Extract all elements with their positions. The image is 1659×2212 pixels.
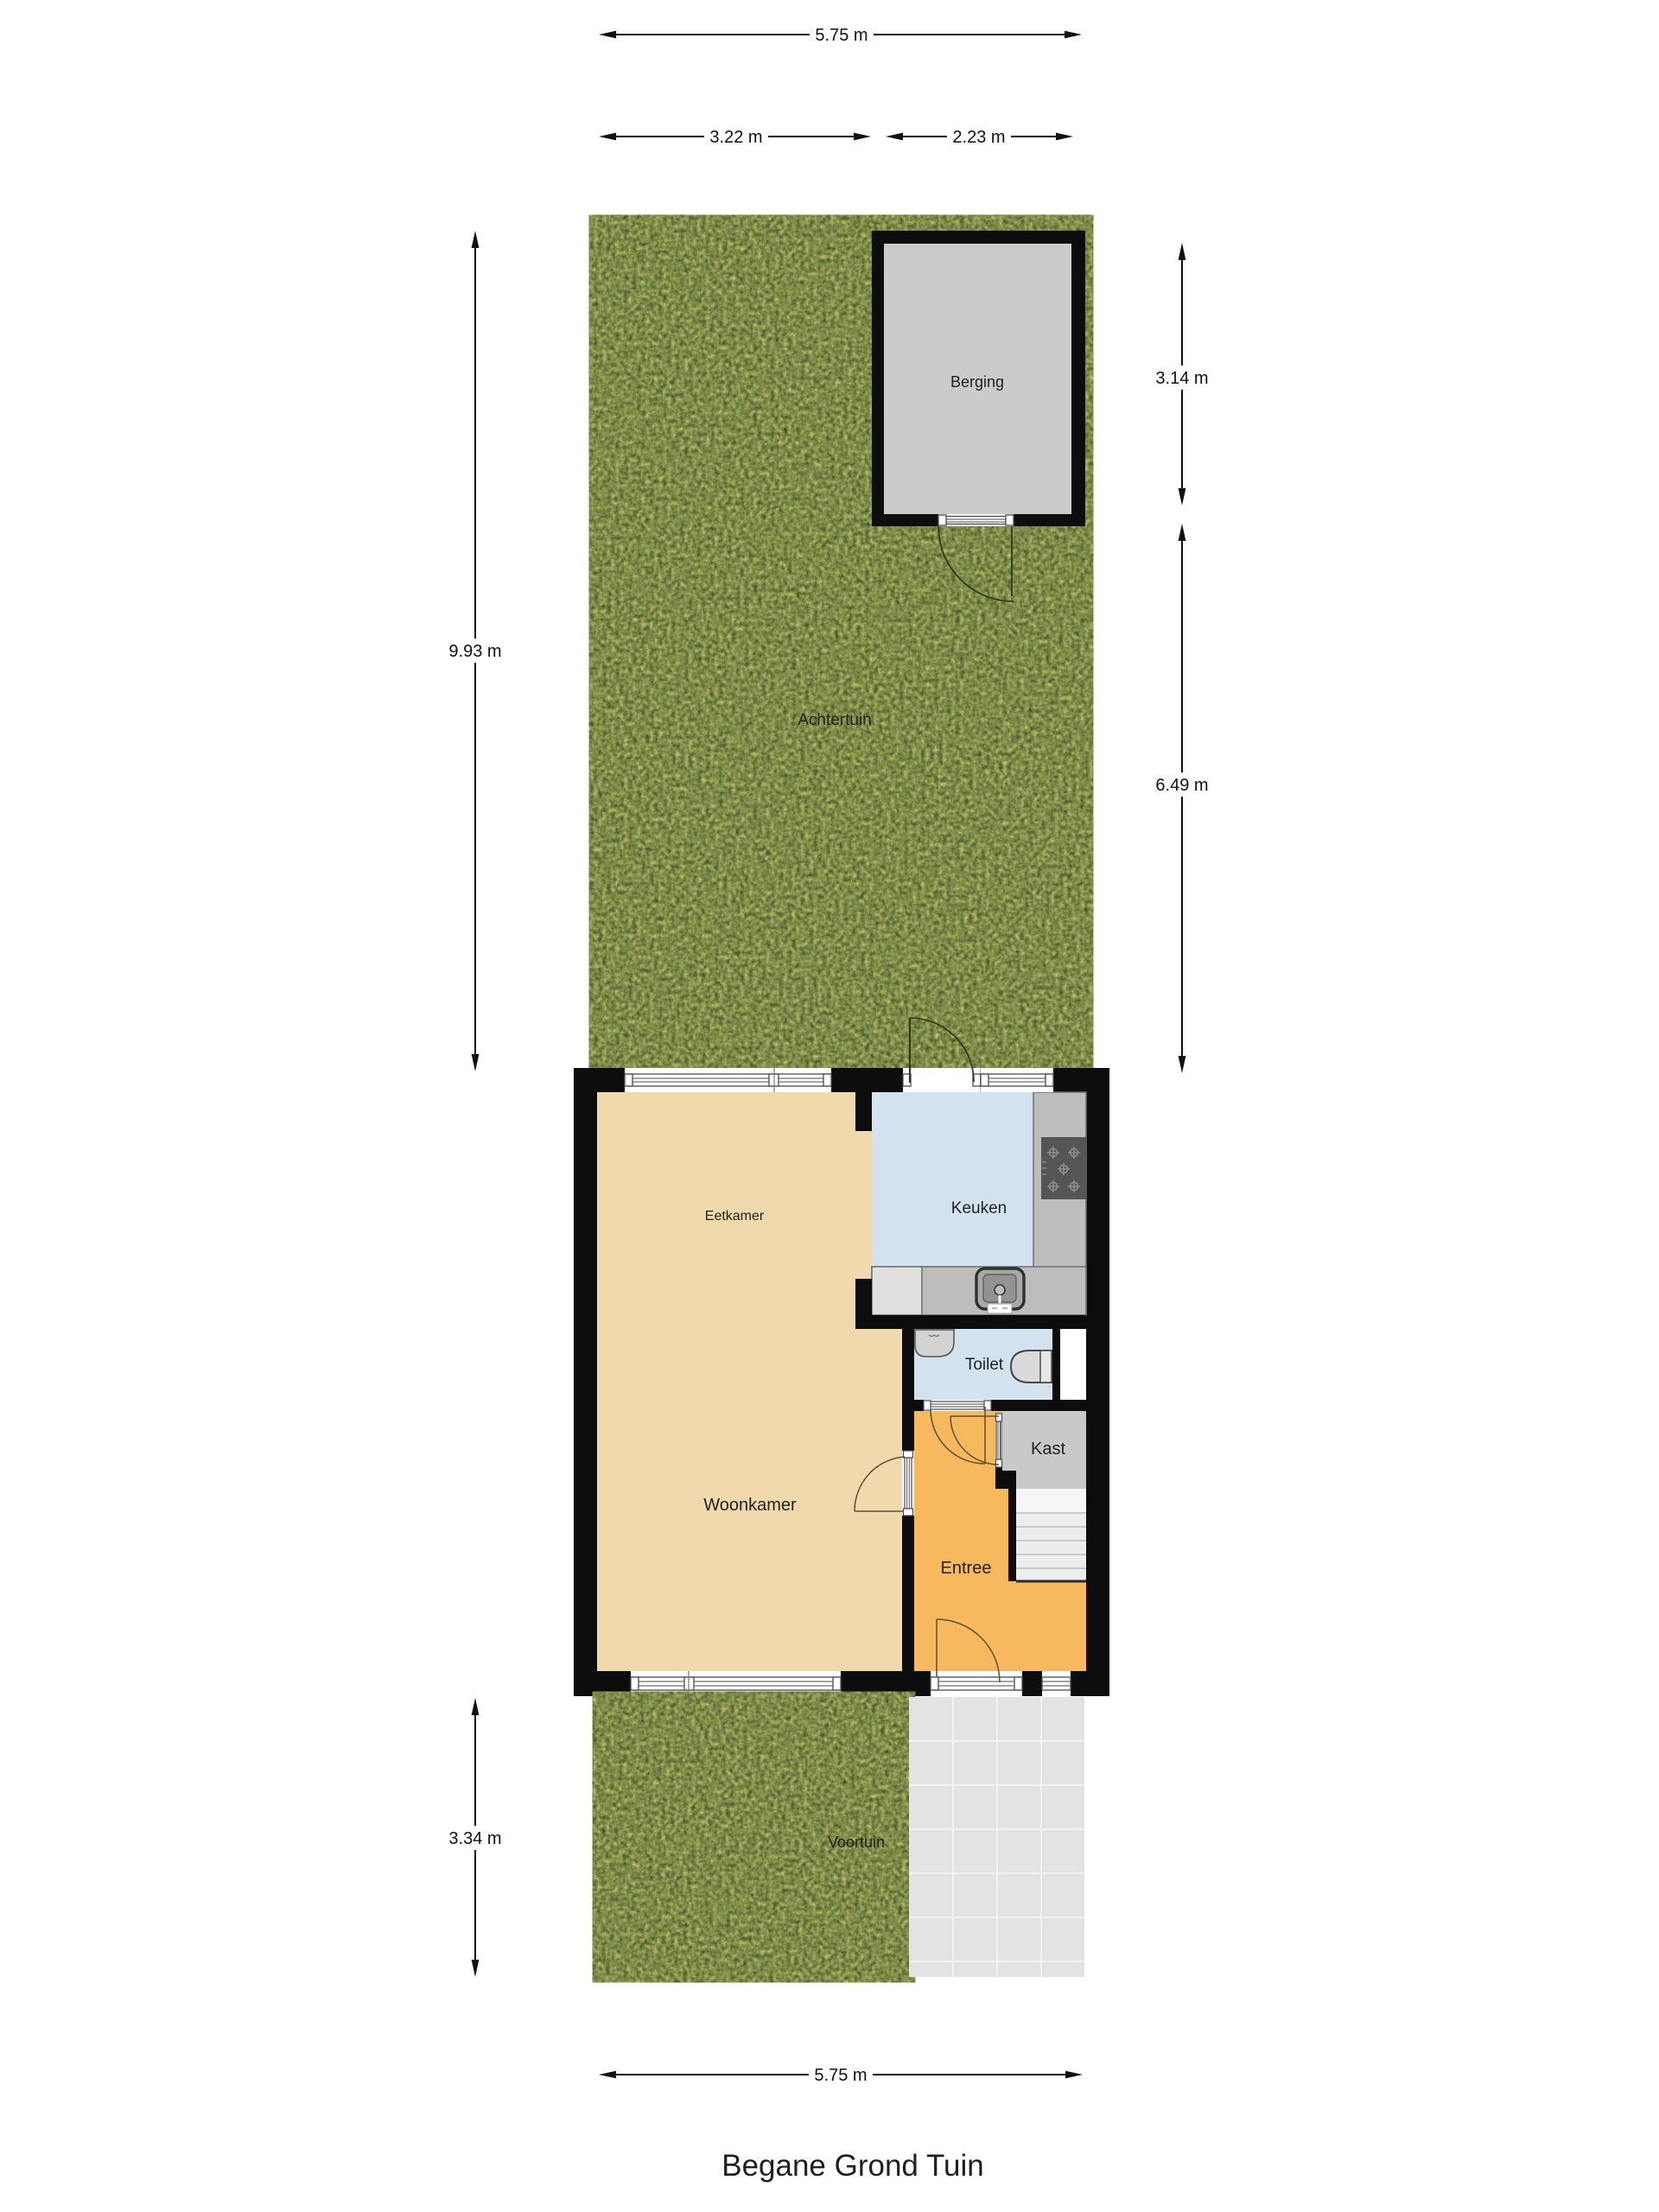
svg-text:Toilet: Toilet: [965, 1356, 1004, 1374]
svg-text:5.75 m: 5.75 m: [814, 2066, 867, 2085]
svg-text:Berging: Berging: [950, 373, 1004, 391]
svg-text:6.49 m: 6.49 m: [1155, 776, 1208, 795]
svg-text:3.34 m: 3.34 m: [448, 1829, 501, 1848]
svg-text:Kast: Kast: [1031, 1440, 1065, 1459]
svg-text:Begane Grond Tuin: Begane Grond Tuin: [721, 2149, 984, 2183]
svg-text:9.93 m: 9.93 m: [448, 642, 501, 661]
svg-text:Achtertuin: Achtertuin: [798, 711, 872, 729]
svg-text:Entree: Entree: [941, 1559, 992, 1578]
svg-text:3.22 m: 3.22 m: [709, 128, 762, 147]
svg-text:5.75 m: 5.75 m: [815, 26, 868, 45]
svg-text:Eetkamer: Eetkamer: [705, 1209, 765, 1224]
svg-text:Voortuin: Voortuin: [828, 1834, 885, 1851]
svg-text:Keuken: Keuken: [951, 1199, 1007, 1217]
svg-text:3.14 m: 3.14 m: [1155, 369, 1208, 388]
svg-text:Woonkamer: Woonkamer: [703, 1496, 797, 1515]
svg-text:2.23 m: 2.23 m: [952, 128, 1005, 147]
